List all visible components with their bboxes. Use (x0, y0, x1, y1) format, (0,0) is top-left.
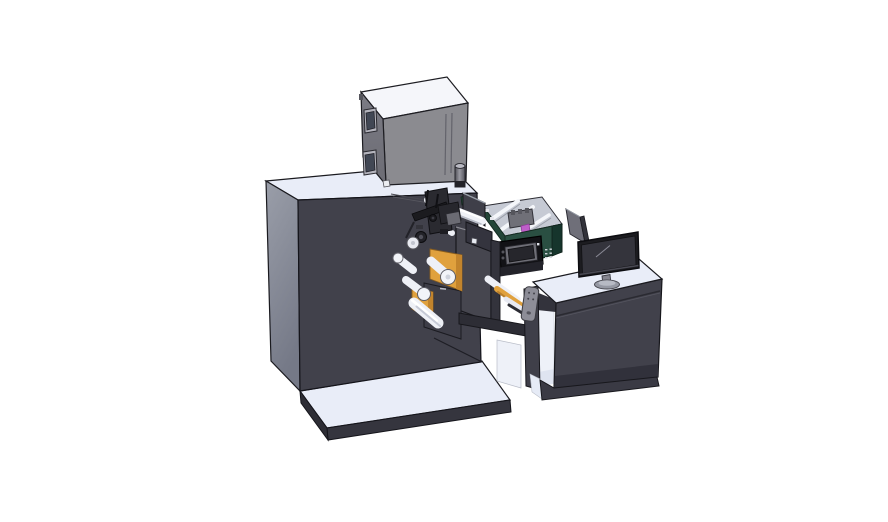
module-right-face (552, 224, 562, 256)
vent-dot (550, 257, 552, 258)
top-enclosure-box (359, 77, 468, 187)
panel-knob (502, 257, 505, 260)
idler-roller-end (393, 253, 403, 263)
vent-dot (550, 253, 552, 254)
module-screw (537, 243, 539, 245)
box-window-glass (366, 112, 375, 131)
vent-dot (545, 249, 547, 250)
label-web-upper-shade (456, 254, 462, 291)
cabinet-left-face (266, 181, 300, 391)
cylinder-top (455, 164, 465, 169)
guide-roller-end (418, 288, 431, 301)
desk-shelf-cavity (538, 301, 554, 376)
monitor-base-top (599, 280, 616, 286)
module-hinge (490, 217, 494, 220)
secondary-display-panel (566, 209, 589, 243)
roller-end-hub (411, 241, 415, 245)
tower-latch (472, 238, 478, 244)
exhaust-cylinder (455, 164, 465, 187)
pressure-roller-hub (446, 275, 451, 280)
mech-pulley-hub (432, 217, 435, 220)
cad-render (0, 0, 888, 522)
vent-dot (545, 257, 547, 258)
box-window-glass (365, 154, 375, 173)
mech-bit (440, 229, 448, 234)
mech-gray-block (446, 212, 461, 226)
vent-dot (550, 249, 552, 250)
carriage-detail (525, 208, 529, 213)
box-latch (383, 180, 390, 187)
mech-bit (416, 225, 423, 229)
module-hinge (485, 209, 489, 212)
cad-viewport (0, 0, 888, 522)
operator-desk (524, 259, 662, 400)
panel-knob (502, 251, 505, 254)
box-hinge (359, 94, 363, 100)
vent-dot (545, 253, 547, 254)
tension-knob-hub (419, 235, 423, 239)
lower-shelf-face (497, 340, 521, 388)
carriage-detail (518, 209, 522, 214)
carriage-detail (511, 210, 515, 215)
cylinder-base-band (455, 181, 465, 187)
